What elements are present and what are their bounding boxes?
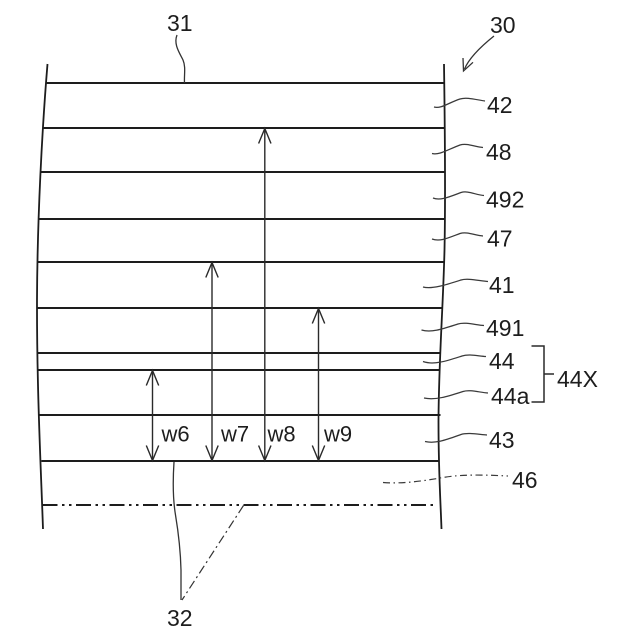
svg-text:w9: w9 [323,422,352,447]
svg-text:w6: w6 [161,422,190,447]
svg-text:42: 42 [487,92,513,118]
svg-text:48: 48 [486,139,512,165]
svg-text:31: 31 [167,10,193,36]
svg-text:43: 43 [489,427,515,453]
svg-text:46: 46 [512,467,538,493]
svg-text:w8: w8 [267,422,296,447]
svg-text:44: 44 [489,348,515,374]
svg-text:32: 32 [167,605,193,631]
svg-text:30: 30 [490,12,516,38]
svg-text:44a: 44a [491,383,530,409]
svg-text:47: 47 [487,226,513,252]
svg-text:44X: 44X [557,366,598,392]
svg-text:491: 491 [486,315,524,341]
svg-text:492: 492 [486,187,524,213]
svg-text:w7: w7 [220,422,249,447]
svg-text:41: 41 [489,272,515,298]
